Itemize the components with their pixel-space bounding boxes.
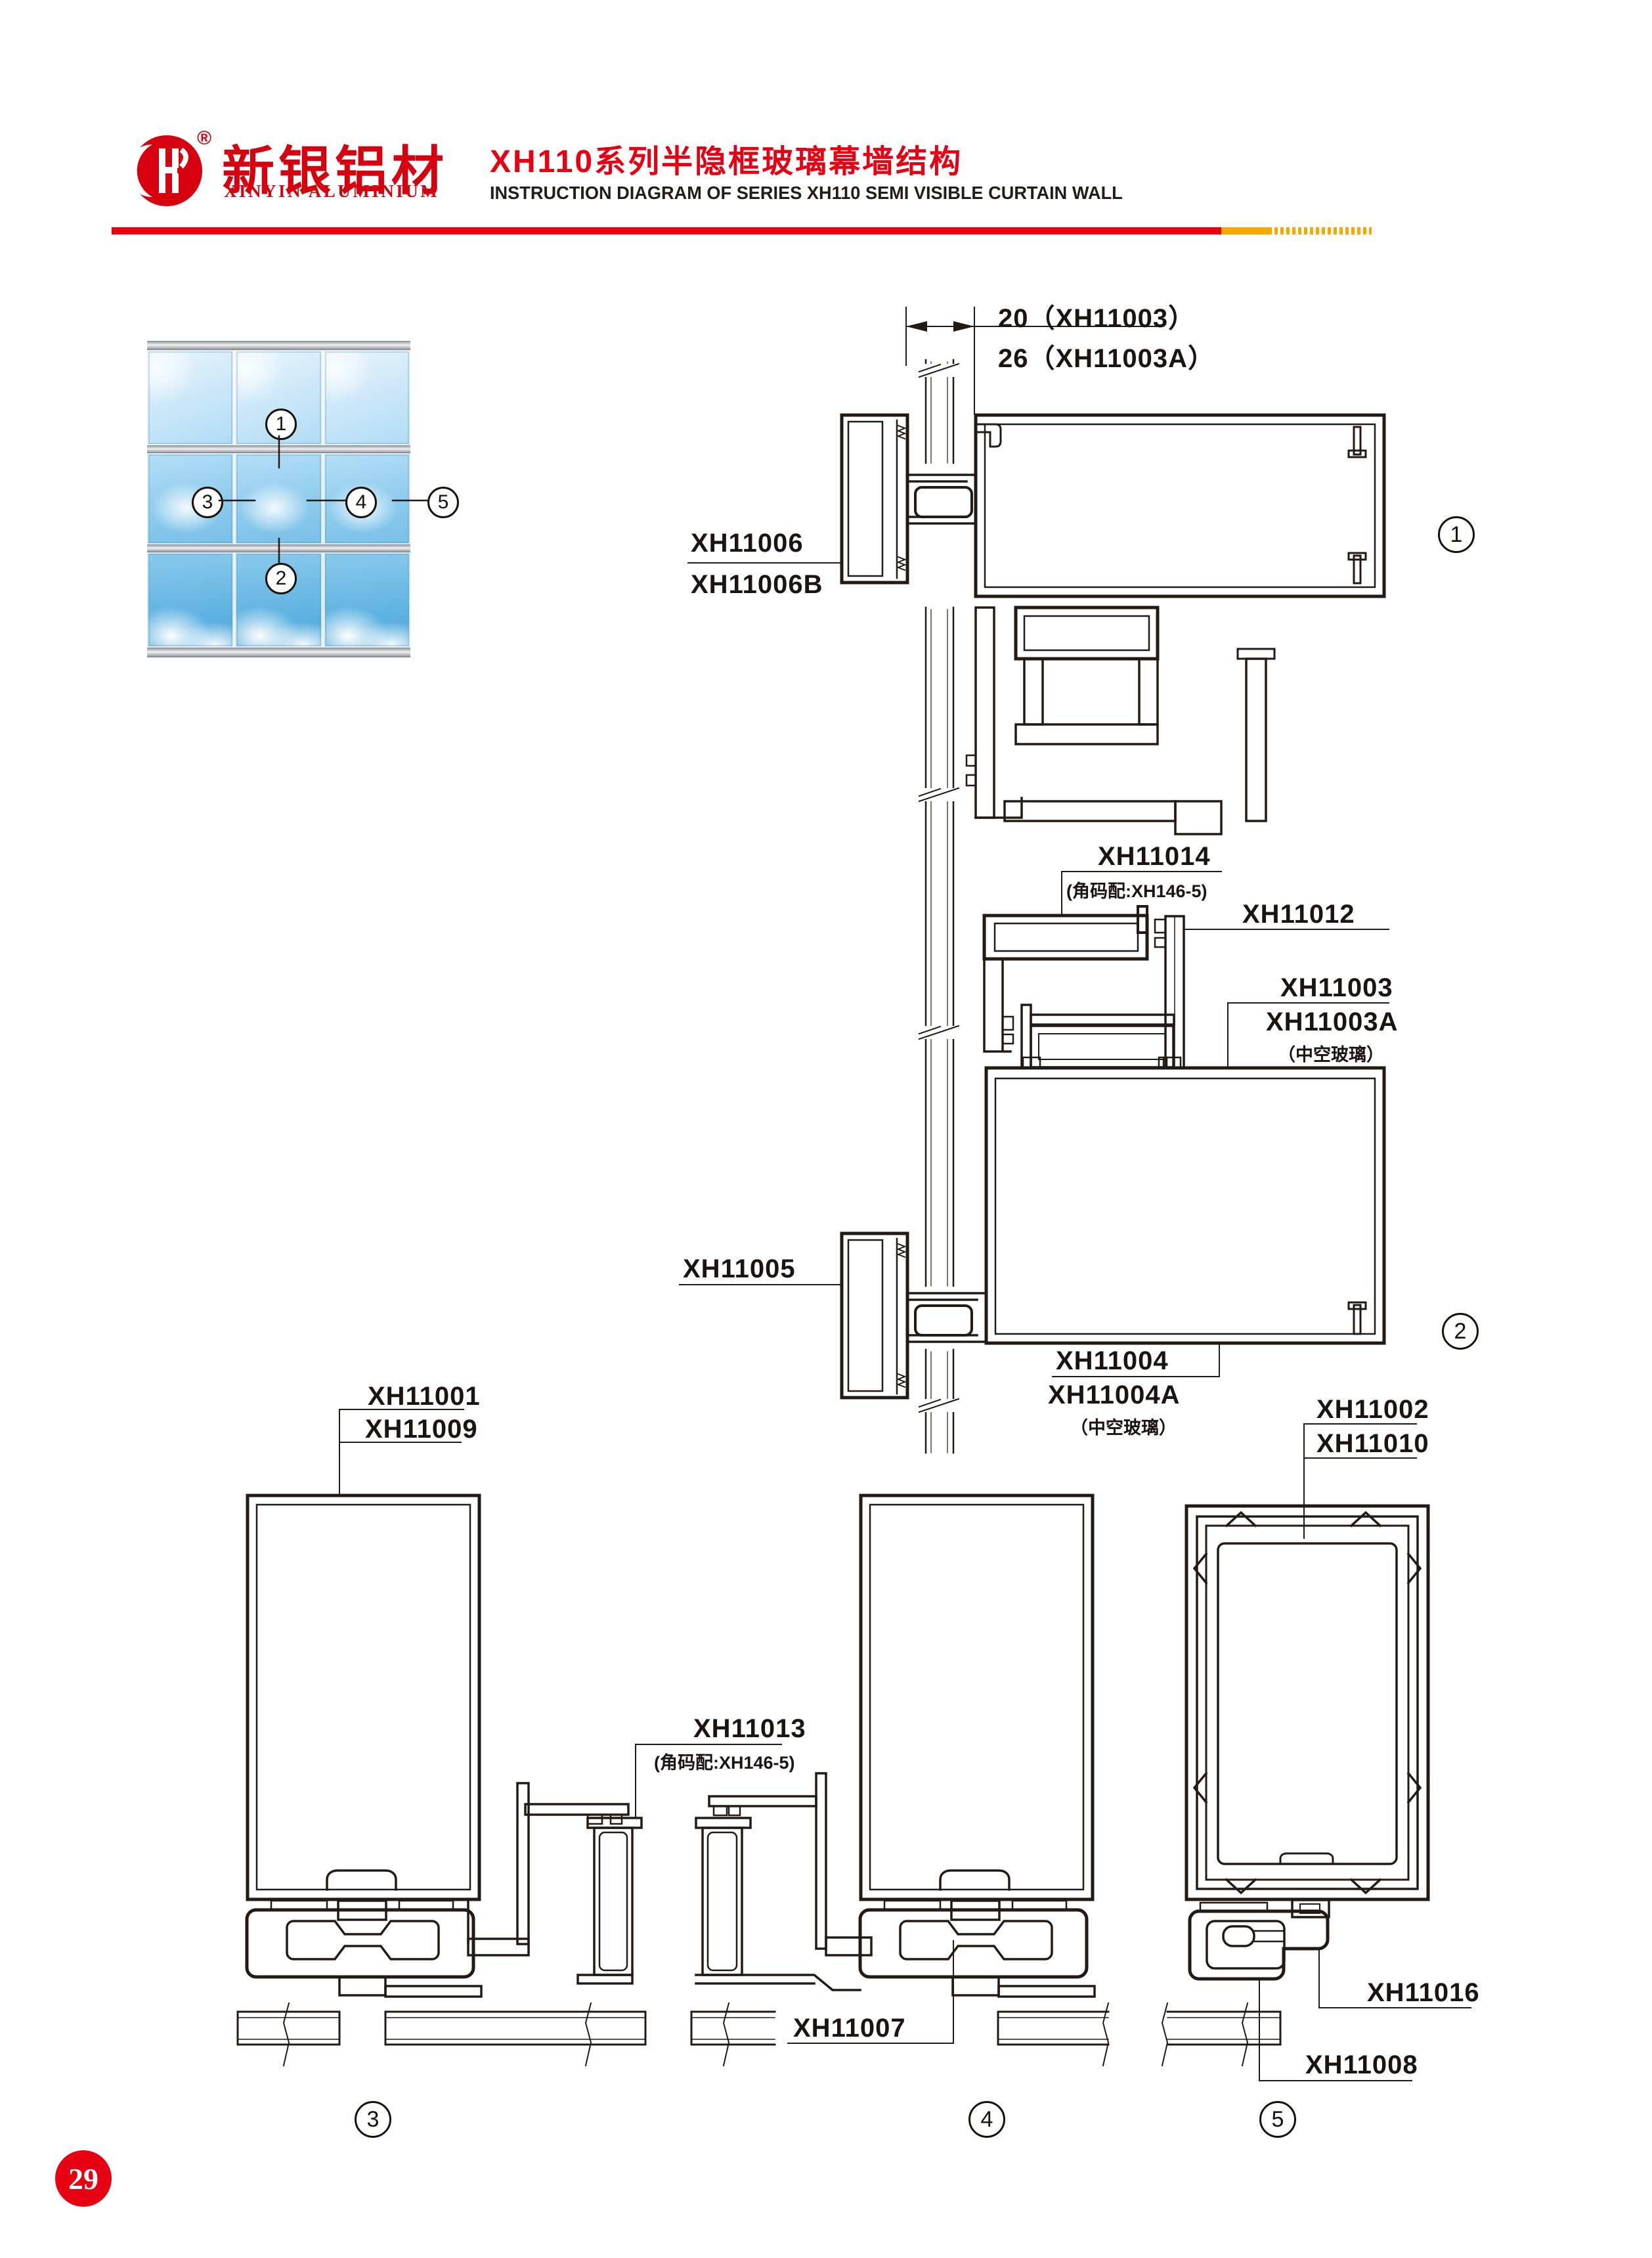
part-label-xh11004: XH11004 bbox=[1056, 1346, 1169, 1376]
detail-5-section bbox=[1186, 1506, 1428, 1979]
part-label-xh11010: XH11010 bbox=[1316, 1429, 1429, 1459]
part-note-xh146-5b: (角码配:XH146-5) bbox=[654, 1748, 795, 1774]
part-label-xh11006b: XH11006B bbox=[691, 570, 823, 600]
detail-1-section bbox=[842, 307, 1384, 834]
part-label-xh11004a: XH11004A bbox=[1048, 1381, 1180, 1410]
page-number: 29 bbox=[55, 2150, 112, 2207]
detail-4-section bbox=[696, 1495, 1095, 1997]
sill-strips bbox=[238, 2003, 1280, 2066]
dim-label-20: 20（XH11003） bbox=[998, 297, 1195, 335]
part-label-xh11013: XH11013 bbox=[693, 1714, 806, 1744]
part-label-xh11003a: XH11003A bbox=[1266, 1007, 1398, 1037]
technical-drawing bbox=[0, 0, 1652, 2258]
part-note-insulated-glass-a: （中空玻璃） bbox=[1278, 1040, 1384, 1066]
part-label-xh11016: XH11016 bbox=[1367, 1978, 1480, 2008]
section-badge-1: 1 bbox=[1438, 516, 1475, 553]
dim-label-26: 26（XH11003A） bbox=[998, 337, 1215, 375]
page: ® 新银铝材 XINYIN ALUMINIUM XH110系列半隐框玻璃幕墙结构… bbox=[0, 0, 1652, 2258]
part-label-xh11009: XH11009 bbox=[365, 1415, 478, 1444]
part-note-xh146-5: (角码配:XH146-5) bbox=[1066, 877, 1207, 902]
part-label-xh11006: XH11006 bbox=[691, 529, 804, 558]
part-label-xh11003: XH11003 bbox=[1280, 973, 1393, 1003]
glass-run-mid bbox=[919, 608, 959, 1286]
part-label-xh11005: XH11005 bbox=[683, 1254, 796, 1284]
part-label-xh11007: XH11007 bbox=[793, 2014, 906, 2043]
part-label-xh11014: XH11014 bbox=[1098, 842, 1211, 872]
section-badge-4: 4 bbox=[968, 2101, 1005, 2138]
detail-3-section bbox=[247, 1495, 641, 1997]
part-note-insulated-glass-b: （中空玻璃） bbox=[1070, 1413, 1177, 1439]
part-label-xh11008: XH11008 bbox=[1305, 2050, 1418, 2080]
section-badge-5: 5 bbox=[1259, 2101, 1296, 2138]
section-badge-3: 3 bbox=[355, 2101, 391, 2138]
section-badge-2: 2 bbox=[1442, 1313, 1479, 1350]
part-label-xh11001: XH11001 bbox=[368, 1382, 481, 1411]
part-label-xh11012: XH11012 bbox=[1242, 900, 1355, 929]
part-label-xh11002: XH11002 bbox=[1316, 1395, 1429, 1425]
photo-leader-lines bbox=[219, 436, 427, 563]
